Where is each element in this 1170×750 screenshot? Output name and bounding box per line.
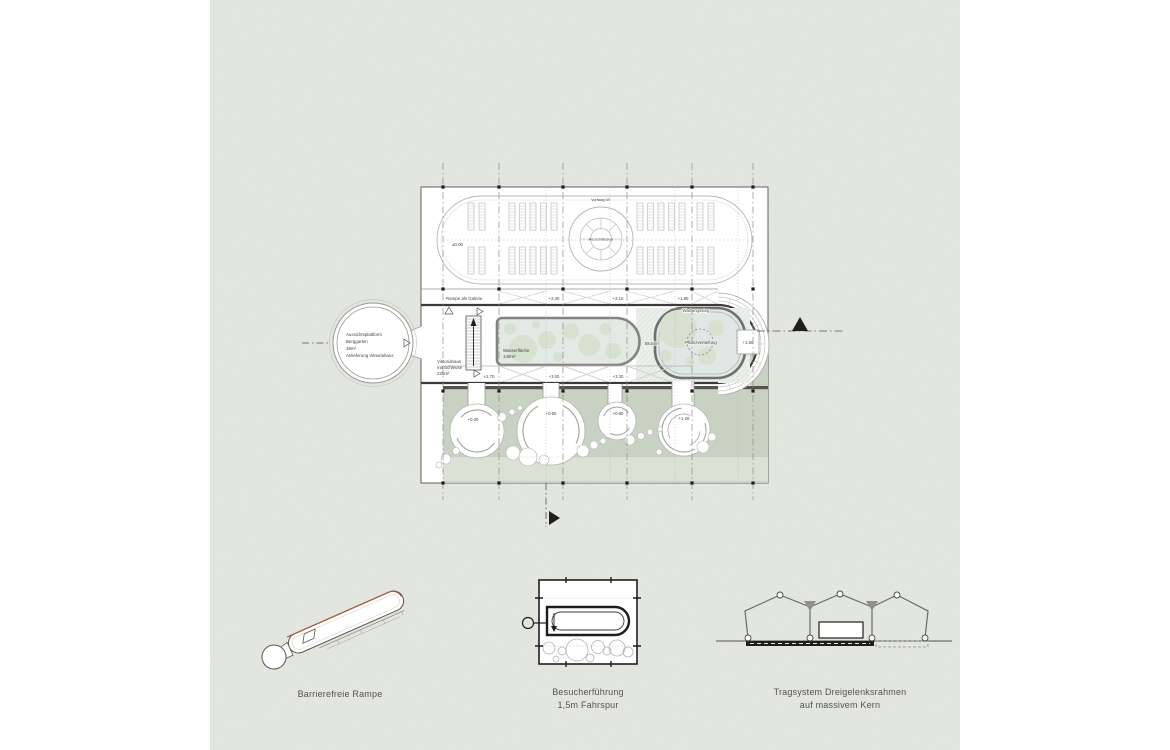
water-pool: Wasserfläche 140m² [497, 318, 640, 365]
bubble-line-4: Anlieferung Viktoriahaus [346, 353, 394, 358]
bubble-line-1: Aussichtsplattform [346, 332, 382, 337]
label-level-zero: ±0.00 [452, 242, 464, 247]
label-wasserflaeche: Wasserfläche [503, 348, 530, 353]
label-wartungssteg: Wartungssteg [683, 308, 710, 313]
label-garden-060: +0.60 [546, 411, 557, 416]
planting-basin: Pflanzvertiefung [655, 308, 745, 378]
label-level-300: +3.00 [549, 374, 560, 379]
label-wasserflaeche-area: 140m² [503, 354, 516, 359]
label-viktoriahaus-2: mit Schleuse [437, 365, 463, 370]
caption-ramp: Barrierefreie Rampe [298, 689, 383, 699]
caption-structure-2: auf massivem Kern [800, 700, 880, 710]
label-garden-030: +0.30 [468, 417, 479, 422]
label-garden-090: +0.90 [613, 411, 624, 416]
bubble-line-3: 38m² [346, 346, 357, 351]
label-viktoriahaus-1: Viktoriahaus [437, 359, 462, 364]
label-rampe-galerie: Rampe als Galerie [446, 296, 483, 301]
label-level-180: +1.80 [678, 296, 689, 301]
label-level-270: +2.70 [484, 374, 495, 379]
label-level-150: +1.50 [743, 340, 754, 345]
label-level-210: +2.10 [613, 296, 624, 301]
caption-structure-1: Tragsystem Dreigelenksrahmen [774, 687, 907, 697]
massive-core [819, 622, 863, 638]
caption-visitor-1: Besucherführung [552, 687, 624, 697]
caption-visitor-2: 1,5m Fahrspur [557, 700, 618, 710]
label-viktoriahaus-3: 225m² [437, 371, 450, 376]
label-level-240: +2.40 [549, 296, 560, 301]
architectural-sheet: Vorhang UK Anzuchtbecken ±0.00 Rampe [0, 0, 1170, 750]
label-garden-120: +1.20 [679, 416, 690, 421]
drawing-canvas: Vorhang UK Anzuchtbecken ±0.00 Rampe [0, 0, 1170, 750]
landing-150: +1.50 [737, 330, 759, 354]
label-vorhang-uk: Vorhang UK [591, 198, 611, 202]
label-pflanzvertiefung: Pflanzvertiefung [685, 340, 717, 345]
label-bruecke: Brücke [645, 341, 659, 346]
label-anzuchtbecken: Anzuchtbecken [589, 238, 614, 242]
label-level-330: +3.30 [613, 374, 624, 379]
bubble-line-2: Berggarten [346, 339, 368, 344]
